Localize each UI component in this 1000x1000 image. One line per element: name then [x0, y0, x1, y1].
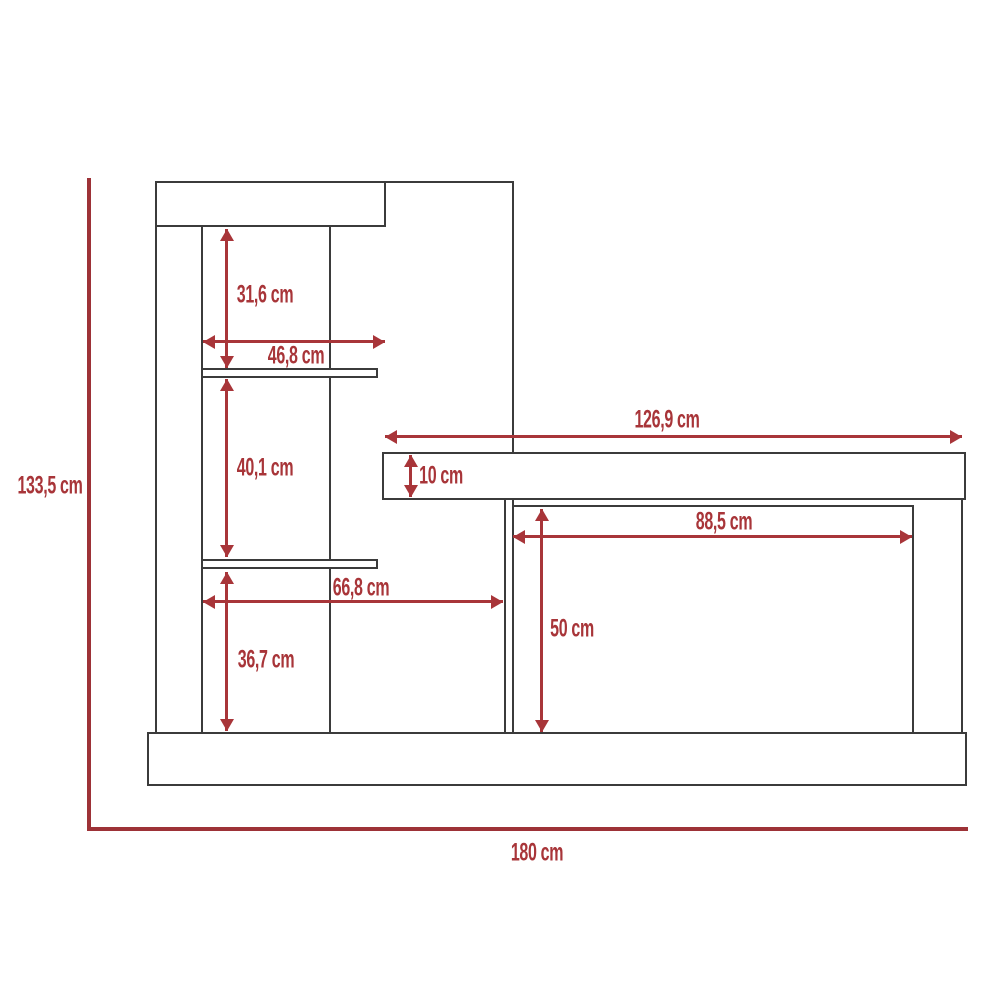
lower-shelf [201, 559, 378, 569]
arrow-middle-shelf-space-height [225, 379, 228, 557]
desktop-board [382, 452, 966, 500]
label-total-height: 133,5 cm [17, 472, 82, 501]
label-middle-shelf-space-height: 40,1 cm [237, 454, 293, 483]
arrow-desk-opening-height [540, 509, 543, 732]
furniture-dimension-diagram: 133,5 cm 180 cm 31,6 cm 46,8 cm 40,1 cm … [0, 0, 1000, 1000]
left-side-panel-outer-edge [155, 181, 157, 734]
label-desktop-thickness: 10 cm [419, 462, 463, 491]
center-divider-panel [329, 225, 331, 734]
arrow-desktop-length [385, 435, 962, 438]
header-board-step-edge [384, 181, 386, 227]
desk-right-leg-inner-edge [912, 505, 914, 734]
overall-width-dimension-line [87, 827, 968, 831]
arrow-lower-shelf-space-height [225, 572, 228, 731]
label-total-width: 180 cm [511, 839, 563, 868]
base-plinth [147, 732, 967, 786]
header-board-bottom-edge [155, 225, 386, 227]
cabinet-top-edge [155, 181, 514, 183]
label-lower-shelf-space-height: 36,7 cm [238, 646, 294, 675]
desk-left-leg-outer-edge [504, 500, 506, 734]
label-desk-opening-height: 50 cm [550, 615, 594, 644]
overall-height-dimension-line [87, 178, 91, 831]
label-lower-shelf-span-width: 66,8 cm [333, 574, 389, 603]
label-desk-opening-width: 88,5 cm [696, 508, 752, 537]
arrow-desktop-thickness [409, 455, 412, 497]
left-side-panel-inner-edge [201, 225, 203, 734]
label-desktop-length: 126,9 cm [634, 406, 699, 435]
label-shelf-width: 46,8 cm [268, 342, 324, 371]
desk-right-leg-outer-edge [961, 500, 963, 734]
label-upper-shelf-space-height: 31,6 cm [237, 281, 293, 310]
arrow-upper-shelf-space-height [225, 229, 228, 368]
back-panel-right-edge [512, 181, 514, 454]
